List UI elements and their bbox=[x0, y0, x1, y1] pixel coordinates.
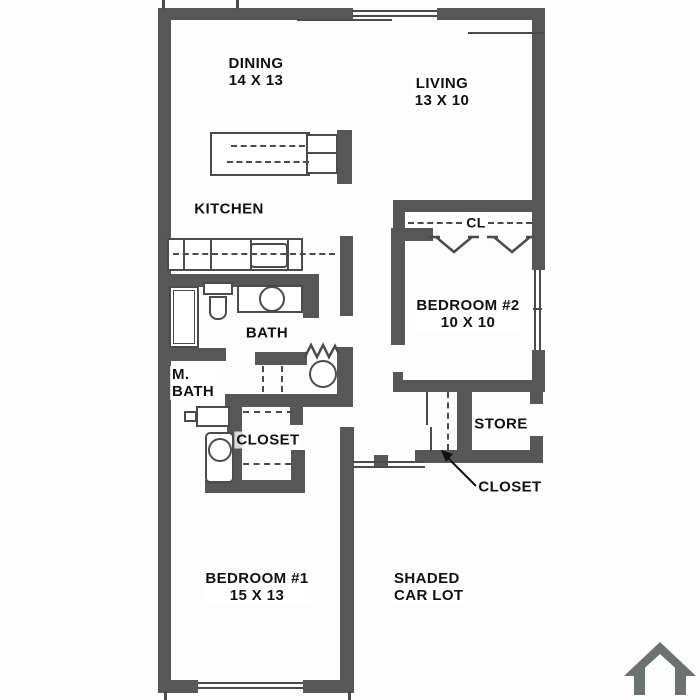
bedroom2-window-line-inner bbox=[539, 270, 541, 350]
mcloset-shelf-dash-bottom bbox=[243, 463, 291, 465]
wall-right-upper bbox=[532, 8, 545, 270]
entry-walk-line-left bbox=[162, 0, 165, 9]
floor-plan: DINING 14 X 13 LIVING 13 X 10 KITCHEN CL… bbox=[0, 0, 700, 700]
bedroom1-label: BEDROOM #1 15 X 13 bbox=[203, 570, 310, 604]
wall-store-top bbox=[403, 380, 543, 392]
living-dims: 13 X 10 bbox=[415, 92, 470, 109]
wall-bedroom2-left bbox=[391, 228, 405, 345]
wall-store-south bbox=[415, 450, 543, 463]
top-window-line-outer bbox=[352, 10, 437, 12]
bedroom1-window-line-inner bbox=[198, 687, 303, 689]
bedroom2-window-tick bbox=[533, 308, 542, 310]
house-icon bbox=[624, 642, 696, 695]
wall-bath-mbath-divider bbox=[158, 348, 226, 361]
master-bath-label: M. BATH bbox=[170, 366, 216, 400]
dining-name: DINING bbox=[229, 55, 284, 72]
master-bath-line1: M. bbox=[172, 366, 214, 383]
wall-mcloset-right-upper bbox=[290, 407, 303, 425]
hall-closet-front-upper bbox=[426, 392, 428, 425]
bedroom2-label: BEDROOM #2 10 X 10 bbox=[414, 297, 521, 331]
bedroom2-dims: 10 X 10 bbox=[416, 314, 519, 331]
bedroom1-name: BEDROOM #1 bbox=[205, 570, 308, 587]
wall-island-end bbox=[337, 130, 352, 184]
bath-label: BATH bbox=[244, 325, 290, 342]
patio-line-right bbox=[348, 691, 351, 700]
kitchen-island-sink-section bbox=[306, 134, 338, 174]
wall-hall-right bbox=[340, 236, 353, 316]
entry-walk-line-right bbox=[236, 0, 239, 9]
wall-store-stub bbox=[393, 372, 403, 392]
hall-closet-rod-dash bbox=[447, 392, 449, 450]
wall-bedroom1-right bbox=[340, 427, 354, 692]
kitchen-island-sink-divider bbox=[308, 152, 336, 154]
wall-bath-south bbox=[225, 394, 352, 407]
island-dash-row2 bbox=[227, 161, 309, 163]
linen-dash-2 bbox=[281, 366, 283, 392]
bath-sink bbox=[259, 286, 285, 312]
car-lot-line1: SHADED bbox=[394, 570, 463, 587]
wall-cl-top bbox=[393, 200, 545, 212]
back-door-threshold-outer bbox=[353, 461, 425, 463]
bedroom1-dims: 15 X 13 bbox=[205, 587, 308, 604]
dining-label: DINING 14 X 13 bbox=[227, 55, 286, 89]
top-window-line-inner bbox=[352, 15, 437, 17]
wall-top-right bbox=[437, 8, 545, 20]
mbath-faucet bbox=[184, 411, 197, 422]
patio-line-left bbox=[164, 691, 167, 700]
toilet-tank bbox=[203, 282, 233, 295]
toilet-bowl bbox=[209, 296, 227, 320]
closet-callout-label: CLOSET bbox=[476, 479, 543, 496]
linen-dash-1 bbox=[262, 366, 264, 392]
bedroom1-window-line-outer bbox=[198, 682, 303, 684]
bathtub-inner bbox=[173, 290, 195, 344]
master-closet-label: CLOSET bbox=[234, 432, 301, 449]
toilet-room-fixture bbox=[309, 360, 337, 388]
kitchen-island bbox=[210, 132, 310, 176]
mbath-sink bbox=[196, 406, 230, 427]
car-lot-line2: CAR LOT bbox=[394, 587, 463, 604]
wall-linen-top bbox=[255, 352, 307, 365]
living-label: LIVING 13 X 10 bbox=[413, 75, 472, 109]
bedroom2-window-line-outer bbox=[534, 270, 536, 350]
bedroom2-name: BEDROOM #2 bbox=[416, 297, 519, 314]
kitchen-label: KITCHEN bbox=[192, 201, 265, 218]
bifold-door-icon bbox=[428, 237, 535, 252]
mbath-toilet-bowl bbox=[208, 438, 232, 462]
wall-store-right-upper bbox=[530, 380, 543, 404]
porch-line-top-right bbox=[468, 32, 544, 34]
island-dash-row1 bbox=[231, 145, 305, 147]
store-label: STORE bbox=[472, 416, 529, 433]
zigzag-break-icon bbox=[305, 345, 339, 357]
cl-label: CL bbox=[464, 215, 487, 232]
wall-bedroom1-south-right bbox=[303, 680, 354, 693]
mcloset-shelf-dash-top bbox=[243, 411, 293, 413]
stove bbox=[250, 243, 288, 268]
dining-dims: 14 X 13 bbox=[229, 72, 284, 89]
master-bath-line2: BATH bbox=[172, 383, 214, 400]
hall-closet-front-lower bbox=[430, 427, 432, 452]
top-window-sill bbox=[297, 19, 392, 21]
counter-centerline-dash bbox=[173, 253, 335, 255]
car-lot-label: SHADED CAR LOT bbox=[392, 570, 465, 604]
back-door-threshold-inner bbox=[353, 466, 425, 468]
wall-cl-step bbox=[403, 228, 433, 241]
cl-rod-dash-left bbox=[408, 222, 462, 224]
wall-bath-sink-side bbox=[303, 274, 319, 318]
living-name: LIVING bbox=[415, 75, 470, 92]
cl-rod-dash-right bbox=[488, 222, 532, 224]
